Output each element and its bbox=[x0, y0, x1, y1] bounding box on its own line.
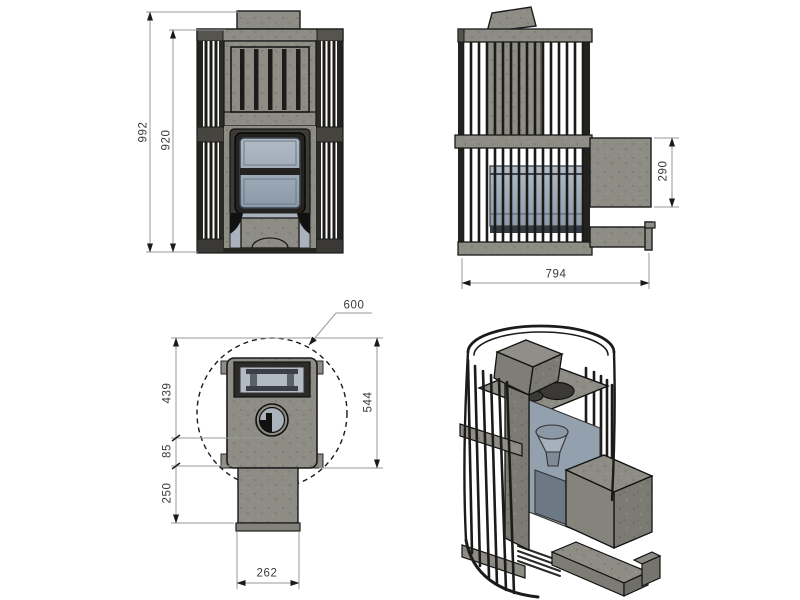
front-stone-panel bbox=[224, 41, 316, 126]
top-chimney-collar bbox=[256, 404, 288, 436]
dim-front-body-height: 920 bbox=[161, 130, 173, 151]
front-cage-right bbox=[316, 41, 343, 253]
top-view bbox=[197, 338, 347, 531]
dim-front-total-height: 992 bbox=[138, 122, 150, 143]
side-chimney-wedge bbox=[487, 7, 536, 32]
drawing-geometry bbox=[0, 0, 800, 600]
top-magazine-opening bbox=[234, 362, 310, 397]
top-tunnel-lip bbox=[236, 523, 300, 531]
dim-side-total-depth: 794 bbox=[546, 269, 567, 281]
cutaway-view bbox=[460, 326, 660, 597]
cutaway-base-rail bbox=[552, 542, 660, 596]
side-fuel-tunnel bbox=[590, 138, 651, 207]
side-top-band bbox=[458, 29, 592, 42]
dim-top-tunnel-width: 262 bbox=[257, 568, 278, 580]
cutaway-fuel-tunnel bbox=[566, 455, 652, 548]
side-bottom-band bbox=[458, 242, 592, 255]
dim-side-tunnel-height: 290 bbox=[658, 161, 670, 182]
front-cage-left bbox=[197, 41, 224, 253]
front-door bbox=[224, 126, 316, 253]
dim-top-front-depth: 439 bbox=[162, 383, 174, 404]
front-view bbox=[197, 11, 343, 253]
dim-top-tunnel-length: 250 bbox=[162, 483, 174, 504]
side-mid-ledge bbox=[455, 135, 592, 148]
top-fuel-tunnel bbox=[238, 468, 298, 523]
side-lower-rail bbox=[590, 222, 655, 250]
dim-top-door-offset: 85 bbox=[162, 444, 174, 458]
dim-top-body-depth: 544 bbox=[363, 392, 375, 413]
drawing-sheet: 992 920 290 794 600 439 85 250 544 262 bbox=[0, 0, 800, 600]
front-chimney-block bbox=[237, 11, 300, 29]
front-base-stone bbox=[241, 218, 299, 248]
dim-top-diameter: 600 bbox=[344, 300, 365, 312]
side-view bbox=[455, 7, 655, 255]
